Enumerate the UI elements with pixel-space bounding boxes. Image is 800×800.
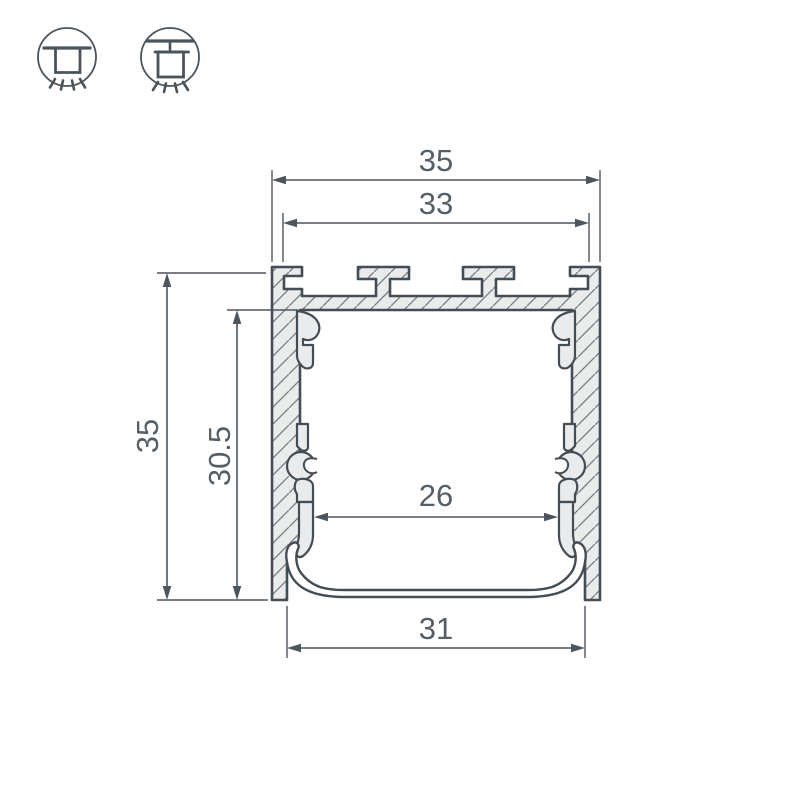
arrowhead-left <box>272 176 286 185</box>
mid-clip-notch <box>555 458 568 473</box>
drawing-page: 35 33 35 30.5 <box>0 0 800 800</box>
dimension-outer-height: 35 <box>130 273 268 600</box>
surface-mount-light-icon <box>38 28 96 90</box>
arrowhead-right <box>571 644 585 653</box>
dimension-label: 35 <box>419 143 453 178</box>
profile-drawing: 35 33 35 30.5 <box>0 0 800 800</box>
arrowhead-right <box>586 176 600 185</box>
mid-clip-tab <box>297 424 308 451</box>
arrowhead-left <box>283 219 297 228</box>
pendant-mount-light-icon <box>141 28 199 92</box>
profile-cross-section <box>272 267 600 600</box>
arrowhead-left <box>314 513 328 522</box>
arrowhead-left <box>287 644 301 653</box>
mid-clip-foot <box>559 479 577 502</box>
dimension-label: 30.5 <box>202 426 237 486</box>
arrowhead-right <box>544 513 558 522</box>
arrowhead-top <box>163 273 172 287</box>
dimension-inner-shelf-width: 26 <box>314 478 558 521</box>
dimension-bottom-opening-width: 31 <box>287 606 585 658</box>
mid-clip-tab <box>564 424 575 451</box>
icon-circle <box>38 28 96 86</box>
dimension-label: 26 <box>419 478 453 513</box>
dimensions: 35 33 35 30.5 <box>130 143 600 658</box>
dimension-label: 31 <box>419 611 453 646</box>
arrowhead-top <box>233 310 242 324</box>
dimension-label: 35 <box>130 419 165 453</box>
mount-icons <box>38 28 199 92</box>
mid-clip-notch <box>304 458 317 473</box>
mid-clip-foot <box>295 479 313 502</box>
dimension-mount-slot-span: 33 <box>283 186 589 262</box>
diffuser-cover <box>286 542 586 597</box>
arrowhead-bottom <box>233 586 242 600</box>
arrowhead-right <box>575 219 589 228</box>
dimension-label: 33 <box>419 186 453 221</box>
arrowhead-bottom <box>163 586 172 600</box>
upper-clip <box>553 311 575 368</box>
upper-clip <box>297 311 319 368</box>
profile-body <box>272 267 600 600</box>
